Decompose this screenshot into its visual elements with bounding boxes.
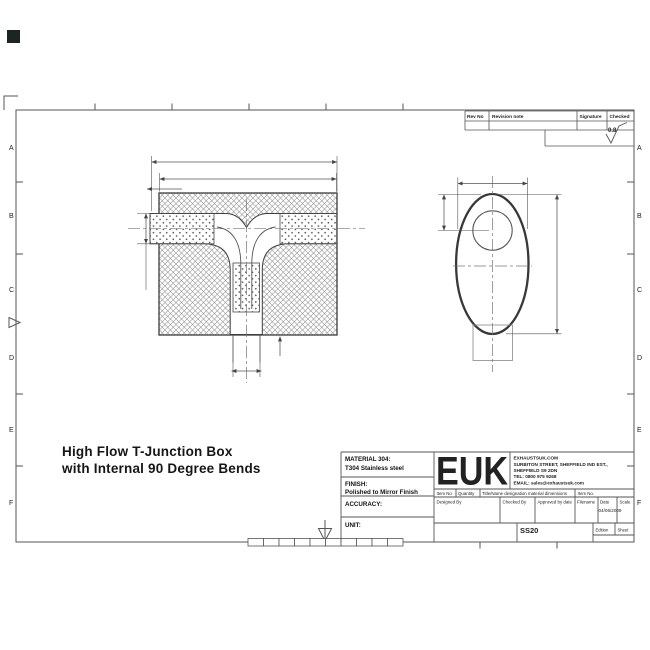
scale-label: Scale (620, 500, 632, 505)
finish-label: FINISH: (345, 481, 367, 488)
row-letter: F (637, 500, 641, 507)
side-view (438, 176, 562, 372)
approved-by-label: Approved by date (538, 500, 573, 505)
company-logo: EUK (436, 450, 508, 494)
front-section-view (128, 156, 365, 383)
part-number: SS20 (520, 526, 538, 535)
scale-bar (248, 539, 403, 547)
revision-table-headers: Rev No Revision note Signature Checked (467, 114, 630, 120)
title-name-header: Title/Name designation material dimensio… (482, 491, 568, 496)
row-letter: B (9, 213, 14, 220)
row-letter: F (9, 500, 13, 507)
left-centering-triangle (9, 318, 20, 328)
company-tel: TEL: 0800 975 9268 (514, 474, 557, 479)
row-letter: D (9, 355, 14, 362)
sheet-label: Sheet (618, 528, 630, 533)
date-label: Date (600, 500, 610, 505)
finish-value: Polished to Mirror Finish (345, 489, 418, 496)
row-letter: A (9, 145, 14, 152)
drawing-sheet: High Flow T-Junction Box with Internal 9… (0, 0, 650, 650)
title-block-text: MATERIAL 304: T304 Stainless steel FINIS… (345, 450, 631, 536)
accuracy-label: ACCURACY: (345, 501, 382, 508)
checked-header: Checked (610, 114, 630, 120)
item-no-header: Item No (437, 491, 453, 496)
date-value: 04/06/2009 (599, 508, 622, 513)
company-address2: SHEFFIELD S9 2DN (514, 468, 558, 473)
surface-finish-symbol: 0.8 (606, 123, 627, 144)
checked-by-label: Checked By (503, 500, 527, 505)
material-label: MATERIAL 304: (345, 456, 391, 463)
border-row-letters-right: A B C D E F (637, 145, 642, 507)
filename-label: Filename (577, 500, 596, 505)
row-letter: C (9, 287, 14, 294)
designed-by-label: Designed By (437, 500, 463, 505)
company-address1: SURBITON STREET, SHEFFIELD IND EST., (514, 462, 608, 467)
material-value: T304 Stainless steel (345, 465, 404, 472)
revision-note-header: Revision note (492, 114, 524, 120)
quantity-header: Quantity (458, 491, 475, 496)
row-letter: D (637, 355, 642, 362)
item-no2-header: Item No. (578, 491, 595, 496)
bottom-centering-triangle (319, 520, 332, 541)
unit-label: UNIT: (345, 522, 361, 529)
row-letter: A (637, 145, 642, 152)
corner-trim-mark (4, 96, 18, 110)
rev-no-header: Rev No (467, 114, 484, 120)
company-website: EXHAUSTSUK.COM (514, 456, 559, 461)
row-letter: E (637, 427, 642, 434)
row-letter: E (9, 427, 14, 434)
row-letter: C (637, 287, 642, 294)
company-email: EMAIL: sales@exhaustsuk.com (514, 481, 584, 486)
signature-header: Signature (580, 114, 602, 120)
edition-label: Edition (596, 528, 609, 533)
drawing-canvas: A B C D E F A B C D E F Rev No Revision … (0, 0, 650, 650)
row-letter: B (637, 213, 642, 220)
